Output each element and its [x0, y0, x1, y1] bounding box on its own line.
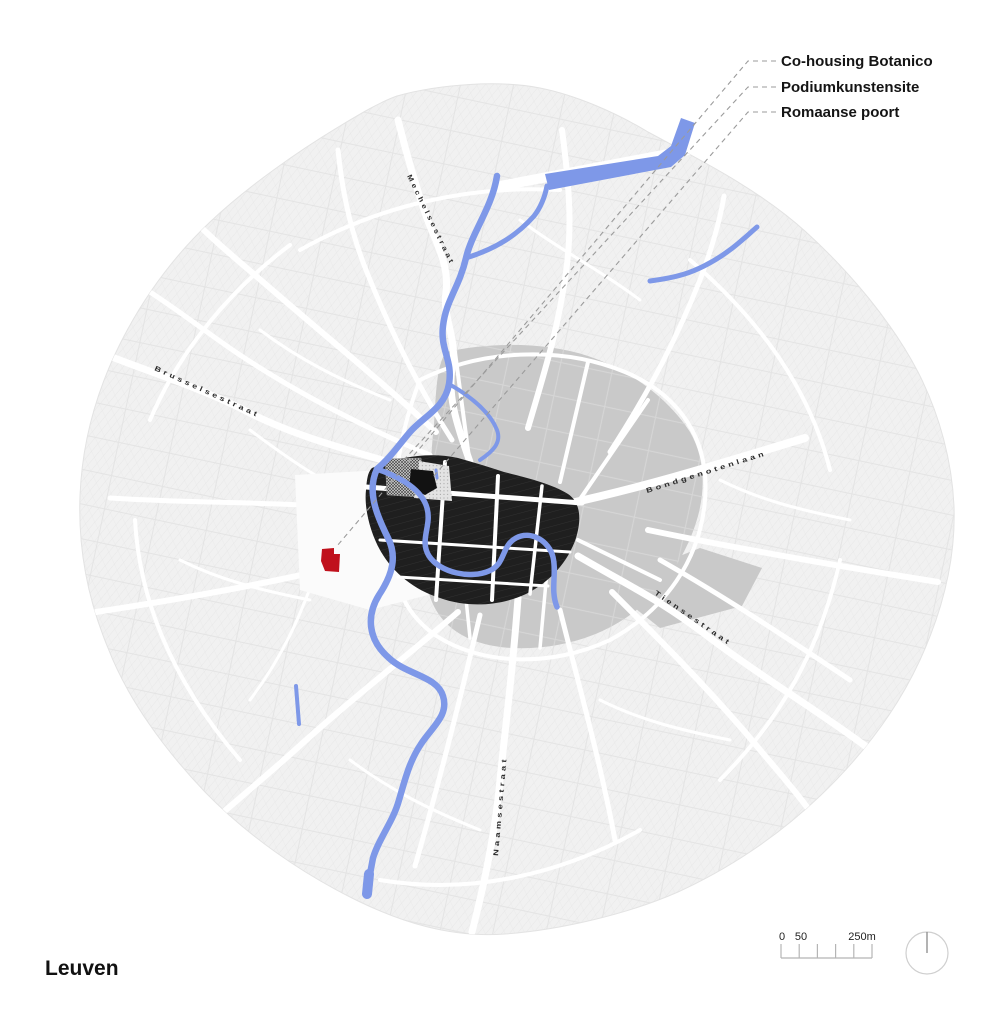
north-indicator: [906, 932, 948, 974]
scale-label-50: 50: [795, 931, 807, 943]
page-title: Leuven: [45, 957, 119, 980]
annotation-podiumkunstensite: Podiumkunstensite: [781, 79, 919, 96]
annotation-romaanse-poort: Romaanse poort: [781, 104, 899, 121]
scale-label-250m: 250m: [848, 931, 876, 943]
city-map: Co-housing Botanico Podiumkunstensite Ro…: [0, 0, 1000, 1019]
annotation-cohousing-botanico: Co-housing Botanico: [781, 53, 933, 70]
scale-label-0: 0: [779, 931, 785, 943]
scale-bar: 0 50 250m: [779, 931, 876, 958]
scale-bar-ticks: [781, 944, 872, 958]
annotation-labels: Co-housing Botanico Podiumkunstensite Ro…: [781, 53, 933, 121]
dijle-mouth: [367, 874, 369, 894]
